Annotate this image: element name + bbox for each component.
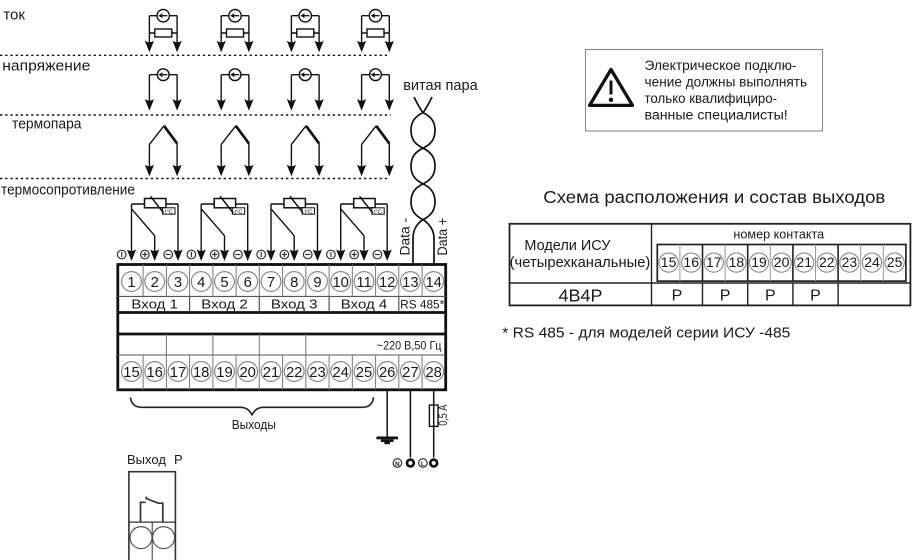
svg-text:Выход: Выход [127,452,166,467]
svg-text:t°C: t°C [374,210,382,216]
svg-text:RS 485*: RS 485* [400,300,445,312]
svg-text:~220 В,50 Гц: ~220 В,50 Гц [377,341,442,353]
svg-text:чение должны выполнять: чение должны выполнять [645,75,808,90]
svg-text:витая пара: витая пара [403,77,478,94]
svg-text:6: 6 [244,275,252,291]
svg-text:19: 19 [216,365,232,381]
svg-text:Модели ИСУ: Модели ИСУ [524,237,610,254]
svg-text:ток: ток [3,7,25,24]
svg-text:12: 12 [379,275,395,291]
svg-text:Вход 2: Вход 2 [201,297,248,311]
svg-text:t°C: t°C [235,210,243,216]
svg-text:термопара: термопара [12,115,82,132]
svg-text:23: 23 [842,254,858,270]
svg-text:22: 22 [286,365,302,381]
svg-text:27: 27 [402,365,418,381]
svg-text:Электрическое подклю-: Электрическое подклю- [645,58,797,73]
svg-text:15: 15 [123,365,139,381]
svg-text:10: 10 [332,275,348,291]
svg-text:13: 13 [402,275,418,291]
svg-text:5: 5 [220,275,228,291]
svg-text:Data -: Data - [398,218,413,256]
svg-text:Выходы: Выходы [232,418,276,432]
svg-text:8: 8 [290,275,298,291]
svg-text:15: 15 [661,254,677,270]
svg-text:23: 23 [309,365,325,381]
svg-text:Вход 3: Вход 3 [271,297,318,311]
svg-text:17: 17 [706,254,722,270]
svg-text:19: 19 [751,254,767,270]
svg-text:16: 16 [146,365,162,381]
svg-text:16: 16 [683,254,699,270]
svg-text:18: 18 [193,365,209,381]
svg-text:18: 18 [729,254,745,270]
svg-text:17: 17 [170,365,186,381]
svg-text:4: 4 [197,275,205,291]
svg-text:Р: Р [672,288,683,305]
svg-text:L: L [421,461,425,468]
svg-text:26: 26 [379,365,395,381]
svg-text:напряжение: напряжение [2,57,90,74]
svg-text:Вход 4: Вход 4 [341,297,388,311]
svg-text:14: 14 [425,275,441,291]
svg-text:ванные специалисты!: ванные специалисты! [645,108,788,123]
svg-text:22: 22 [819,254,835,270]
svg-text:Р: Р [810,288,821,305]
svg-text:(четырехканальные): (четырехканальные) [510,254,651,271]
svg-text:Р: Р [720,288,731,305]
svg-text:Data +: Data + [435,218,450,256]
svg-text:24: 24 [864,254,880,270]
svg-text:t°C: t°C [165,210,173,216]
svg-text:Р: Р [765,288,776,305]
svg-text:2: 2 [151,275,159,291]
svg-text:3: 3 [174,275,182,291]
svg-text:20: 20 [774,254,790,270]
svg-text:* RS 485 - для моделей серии И: * RS 485 - для моделей серии ИСУ -485 [502,324,790,341]
svg-text:N: N [395,461,400,468]
svg-text:21: 21 [263,365,279,381]
svg-text:9: 9 [313,275,321,291]
svg-text:Р: Р [174,452,183,467]
svg-text:Вход 1: Вход 1 [131,297,178,311]
svg-text:25: 25 [887,254,903,270]
svg-text:1: 1 [127,275,135,291]
svg-text:0,5 А: 0,5 А [438,405,450,426]
svg-text:номер контакта: номер контакта [733,228,824,242]
svg-text:t°C: t°C [304,210,312,216]
svg-text:только квалифициро-: только квалифициро- [645,91,778,106]
svg-text:Схема расположения и состав вы: Схема расположения и состав выходов [543,187,885,207]
svg-text:24: 24 [332,365,348,381]
svg-text:термосопротивление: термосопротивление [1,182,135,199]
svg-text:25: 25 [356,365,372,381]
svg-text:20: 20 [239,365,255,381]
svg-text:4В4Р: 4В4Р [559,286,603,306]
svg-text:11: 11 [356,275,371,291]
svg-text:28: 28 [425,365,441,381]
svg-text:21: 21 [796,254,812,270]
svg-text:7: 7 [267,275,275,291]
